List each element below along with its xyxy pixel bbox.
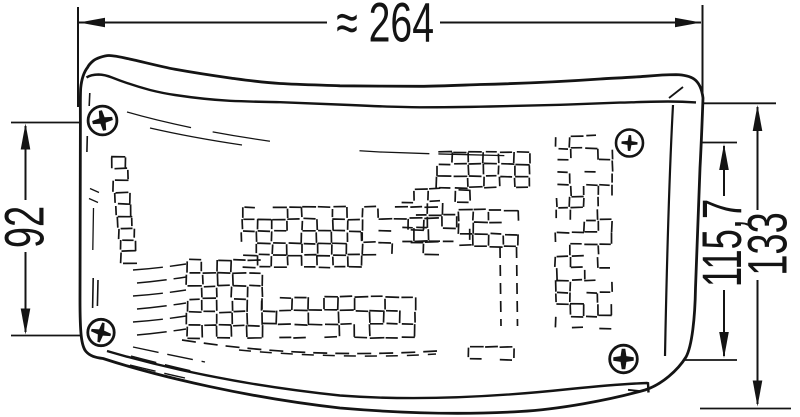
svg-text:92: 92 (0, 206, 56, 248)
svg-text:≈ 264: ≈ 264 (336, 0, 434, 54)
svg-text:133: 133 (737, 212, 799, 276)
